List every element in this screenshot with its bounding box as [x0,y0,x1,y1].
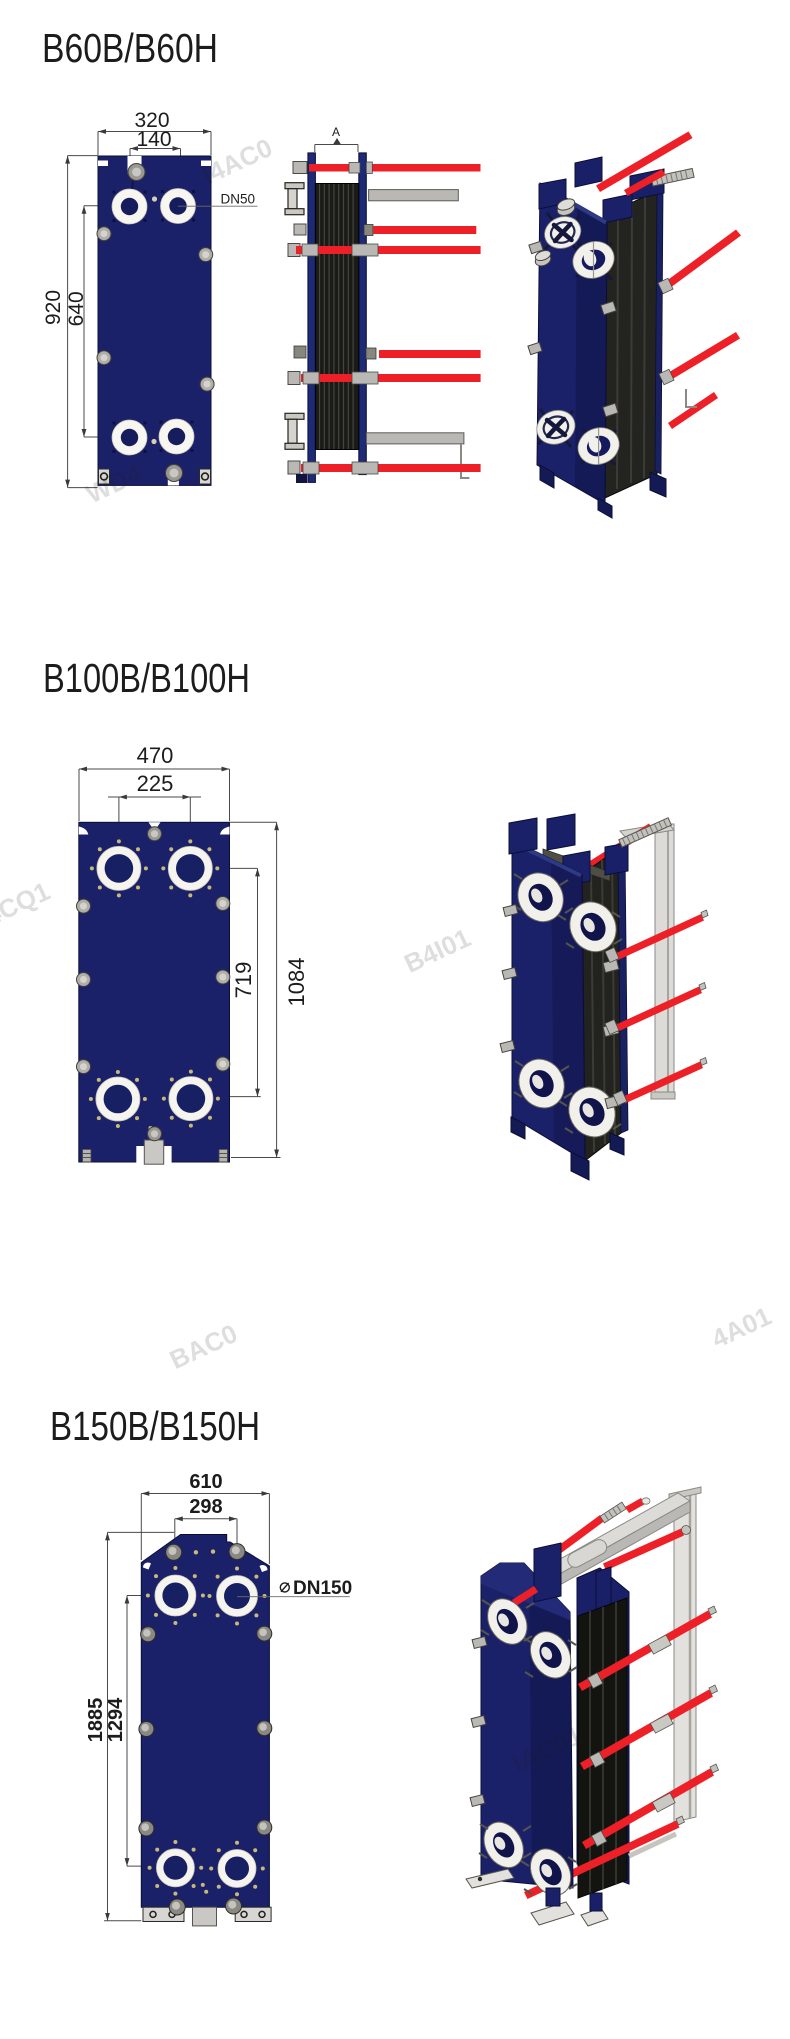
svg-text:140: 140 [136,128,171,151]
svg-text:DN150: DN150 [293,1578,352,1599]
svg-text:1885: 1885 [85,1698,107,1743]
svg-text:719: 719 [231,962,256,999]
svg-text:298: 298 [189,1496,222,1518]
svg-text:B150B/B150H: B150B/B150H [50,1403,260,1449]
svg-text:470: 470 [137,743,174,768]
svg-text:1294: 1294 [105,1697,127,1742]
svg-text:640: 640 [65,291,88,326]
svg-text:A: A [332,125,340,139]
svg-text:225: 225 [137,771,174,796]
svg-text:B60B/B60H: B60B/B60H [42,25,218,71]
svg-text:610: 610 [189,1471,222,1493]
svg-text:DN50: DN50 [221,192,256,207]
svg-text:B100B/B100H: B100B/B100H [43,655,250,701]
svg-text:1084: 1084 [284,958,309,1007]
svg-text:920: 920 [42,290,65,325]
